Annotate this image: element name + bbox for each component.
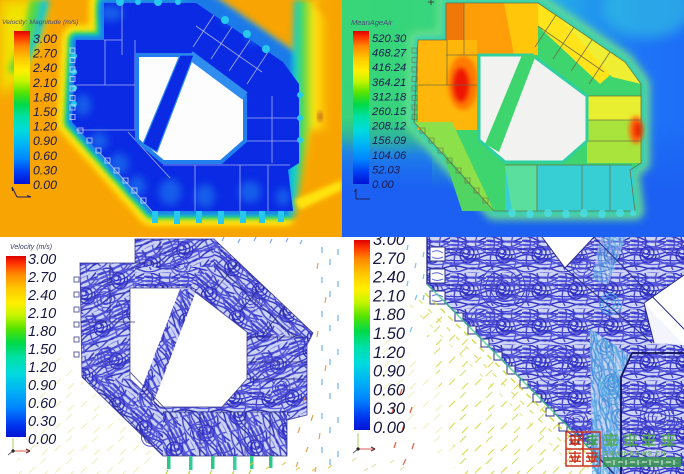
svg-text:1.80: 1.80 [33,90,57,104]
svg-text:0.60: 0.60 [28,396,56,412]
svg-text:2.70: 2.70 [32,47,57,61]
svg-text:3.00: 3.00 [373,237,406,249]
svg-text:1.20: 1.20 [373,344,406,362]
svg-text:104.06: 104.06 [372,150,407,162]
svg-text:1.80: 1.80 [28,324,56,340]
svg-text:0.30: 0.30 [33,163,57,177]
svg-text:1.20: 1.20 [33,120,57,134]
svg-text:2.10: 2.10 [372,287,406,305]
svg-text:312.18: 312.18 [372,91,407,103]
svg-text:1.50: 1.50 [33,105,57,119]
svg-text:416.24: 416.24 [372,62,406,74]
svg-text:0.00: 0.00 [33,178,57,192]
svg-text:3.00: 3.00 [28,252,56,268]
svg-text:156.09: 156.09 [372,135,406,147]
svg-text:0.30: 0.30 [373,400,406,418]
svg-text:0.00: 0.00 [373,419,406,437]
svg-text:GBWINDOWS.CN: GBWINDOWS.CN [603,451,666,458]
svg-text:0.00: 0.00 [28,432,56,448]
svg-text:2.70: 2.70 [372,250,406,268]
svg-text:2.40: 2.40 [27,288,56,304]
svg-text:1.80: 1.80 [373,306,406,324]
svg-text:2.40: 2.40 [372,269,406,287]
svg-text:0.90: 0.90 [33,134,57,148]
svg-text:1.50: 1.50 [373,325,406,343]
svg-text:1.50: 1.50 [28,342,56,358]
svg-text:468.27: 468.27 [372,48,407,60]
svg-text:2.40: 2.40 [32,61,57,75]
svg-text:0.60: 0.60 [33,149,57,163]
svg-text:260.15: 260.15 [371,106,407,118]
svg-text:0.60: 0.60 [373,381,406,399]
svg-text:52.03: 52.03 [372,164,401,176]
svg-text:208.12: 208.12 [371,121,407,133]
svg-text:Velocity (m/s): Velocity (m/s) [10,244,52,251]
svg-text:0.90: 0.90 [373,363,406,381]
svg-text:1.20: 1.20 [28,360,56,376]
svg-text:3.00: 3.00 [33,32,57,46]
svg-text:MeanAgeAir: MeanAgeAir [351,18,393,27]
svg-text:2.70: 2.70 [27,270,56,286]
svg-text:2.10: 2.10 [32,76,57,90]
svg-text:364.21: 364.21 [372,77,406,89]
svg-text:0.90: 0.90 [28,378,56,394]
svg-text:0.00: 0.00 [372,179,395,191]
svg-text:Velocity: Magnitude (m/s): Velocity: Magnitude (m/s) [2,19,78,26]
svg-text:2.10: 2.10 [27,306,56,322]
svg-text:0.30: 0.30 [28,414,56,430]
svg-text:520.30: 520.30 [372,33,407,45]
